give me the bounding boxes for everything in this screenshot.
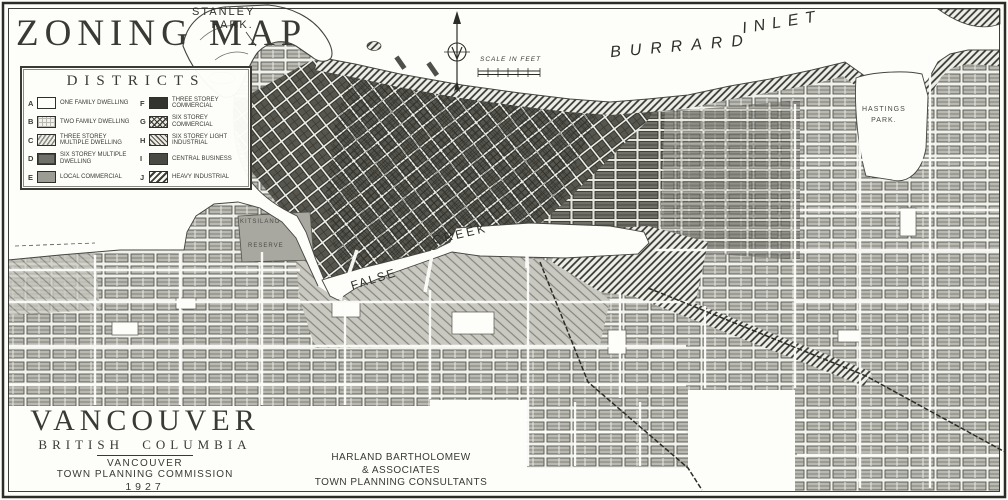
credits-org-line1: VANCOUVER: [26, 458, 264, 469]
credits-city: VANCOUVER: [26, 406, 264, 436]
swatch-central-business: [149, 153, 168, 165]
swatch-light-industrial: [149, 134, 168, 146]
scale-caption: SCALE IN FEET: [480, 56, 541, 63]
swatch-heavy-industrial: [149, 171, 168, 183]
swatch-three-storey-multiple: [37, 134, 56, 146]
legend-item-b: B TWO FAMILY DWELLING: [28, 113, 132, 132]
credits-org-line2: TOWN PLANNING COMMISSION: [26, 469, 264, 480]
harbour-island: [367, 42, 381, 51]
credits-block-right: HARLAND BARTHOLOMEW & ASSOCIATES TOWN PL…: [296, 452, 506, 490]
swatch-six-storey-commercial: [149, 116, 168, 128]
legend-item-j: J HEAVY INDUSTRIAL: [140, 168, 244, 187]
page-title: ZONING MAP: [16, 12, 307, 55]
consultant-line2: & ASSOCIATES: [296, 465, 506, 478]
reserve-label: RESERVE: [248, 243, 284, 249]
legend-item-g: G SIX STOREY COMMERCIAL: [140, 113, 244, 132]
districts-legend: DISTRICTS A ONE FAMILY DWELLING B TWO FA…: [20, 66, 252, 190]
consultant-line1: HARLAND BARTHOLOMEW: [296, 452, 506, 465]
credits-block-left: VANCOUVER BRITISH COLUMBIA VANCOUVER TOW…: [26, 406, 264, 493]
legend-item-e: E LOCAL COMMERCIAL: [28, 168, 132, 187]
legend-item-c: C THREE STOREY MULTIPLE DWELLING: [28, 131, 132, 150]
stanley-park-label: STANLEY PARK.: [192, 6, 255, 32]
credits-province: BRITISH COLUMBIA: [26, 437, 264, 453]
kitsilano-label: KITSILANO: [240, 219, 280, 225]
hastings-park-label: HASTINGS PARK.: [862, 104, 906, 126]
credits-rule: [97, 455, 193, 456]
credits-year: 1927: [26, 481, 264, 493]
legend-title: DISTRICTS: [28, 73, 244, 90]
legend-item-a: A ONE FAMILY DWELLING: [28, 94, 132, 113]
swatch-two-family: [37, 116, 56, 128]
zoning-map-screenshot: ZONING MAP DISTRICTS A ONE FAMILY DWELLI…: [0, 0, 1008, 500]
consultant-line3: TOWN PLANNING CONSULTANTS: [296, 477, 506, 490]
swatch-six-storey-multiple: [37, 153, 56, 165]
swatch-three-storey-commercial: [149, 97, 168, 109]
legend-item-h: H SIX STOREY LIGHT INDUSTRIAL: [140, 131, 244, 150]
legend-item-d: D SIX STOREY MULTIPLE DWELLING: [28, 150, 132, 169]
swatch-one-family: [37, 97, 56, 109]
swatch-local-commercial: [37, 171, 56, 183]
legend-item-f: F THREE STOREY COMMERCIAL: [140, 94, 244, 113]
legend-item-i: I CENTRAL BUSINESS: [140, 150, 244, 169]
